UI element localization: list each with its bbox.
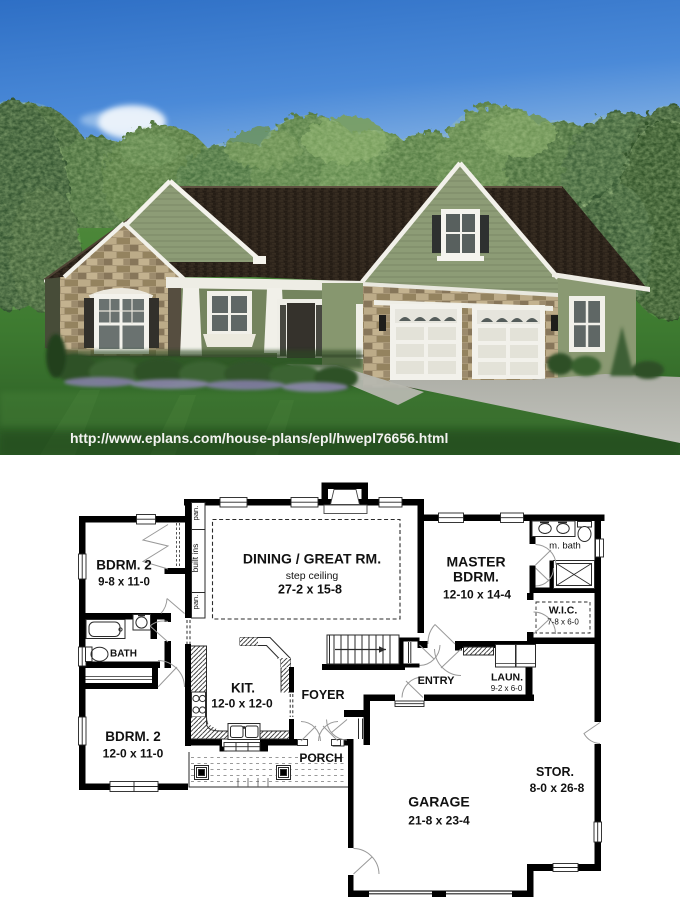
svg-text:pan.: pan. — [191, 595, 200, 610]
svg-text:9-8 x 11-0: 9-8 x 11-0 — [98, 577, 150, 589]
svg-text:W.I.C.: W.I.C. — [549, 605, 578, 617]
svg-text:DINING / GREAT RM.: DINING / GREAT RM. — [243, 551, 381, 567]
svg-text:BATH: BATH — [110, 649, 137, 660]
svg-text:LAUN.: LAUN. — [491, 672, 523, 684]
svg-text:ENTRY: ENTRY — [418, 675, 456, 687]
svg-text:12-0 x 12-0: 12-0 x 12-0 — [211, 697, 273, 711]
svg-text:http://www.eplans.com/house-pl: http://www.eplans.com/house-plans/epl/hw… — [70, 430, 448, 446]
svg-text:12-10 x 14-4: 12-10 x 14-4 — [443, 588, 511, 602]
svg-text:PORCH: PORCH — [299, 751, 342, 765]
svg-text:STOR.: STOR. — [536, 765, 574, 779]
svg-text:FOYER: FOYER — [301, 688, 344, 702]
svg-text:7-8 x 6-0: 7-8 x 6-0 — [547, 618, 579, 627]
svg-text:21-8 x 23-4: 21-8 x 23-4 — [408, 814, 470, 828]
svg-text:BDRM. 2: BDRM. 2 — [105, 729, 161, 744]
svg-text:12-0 x 11-0: 12-0 x 11-0 — [103, 747, 164, 761]
svg-text:27-2 x 15-8: 27-2 x 15-8 — [278, 583, 342, 597]
svg-text:step ceiling: step ceiling — [286, 570, 339, 582]
svg-text:GARAGE: GARAGE — [408, 794, 469, 810]
svg-text:9-2 x 6-0: 9-2 x 6-0 — [491, 684, 523, 693]
svg-text:pan.: pan. — [191, 506, 200, 521]
svg-text:MASTER: MASTER — [446, 554, 505, 570]
svg-text:8-0 x 26-8: 8-0 x 26-8 — [530, 781, 585, 795]
svg-text:BDRM. 2: BDRM. 2 — [96, 558, 152, 573]
svg-text:built ins: built ins — [190, 544, 200, 573]
svg-text:m. bath: m. bath — [549, 541, 581, 552]
svg-text:BDRM.: BDRM. — [453, 569, 499, 585]
svg-text:KIT.: KIT. — [231, 681, 255, 696]
